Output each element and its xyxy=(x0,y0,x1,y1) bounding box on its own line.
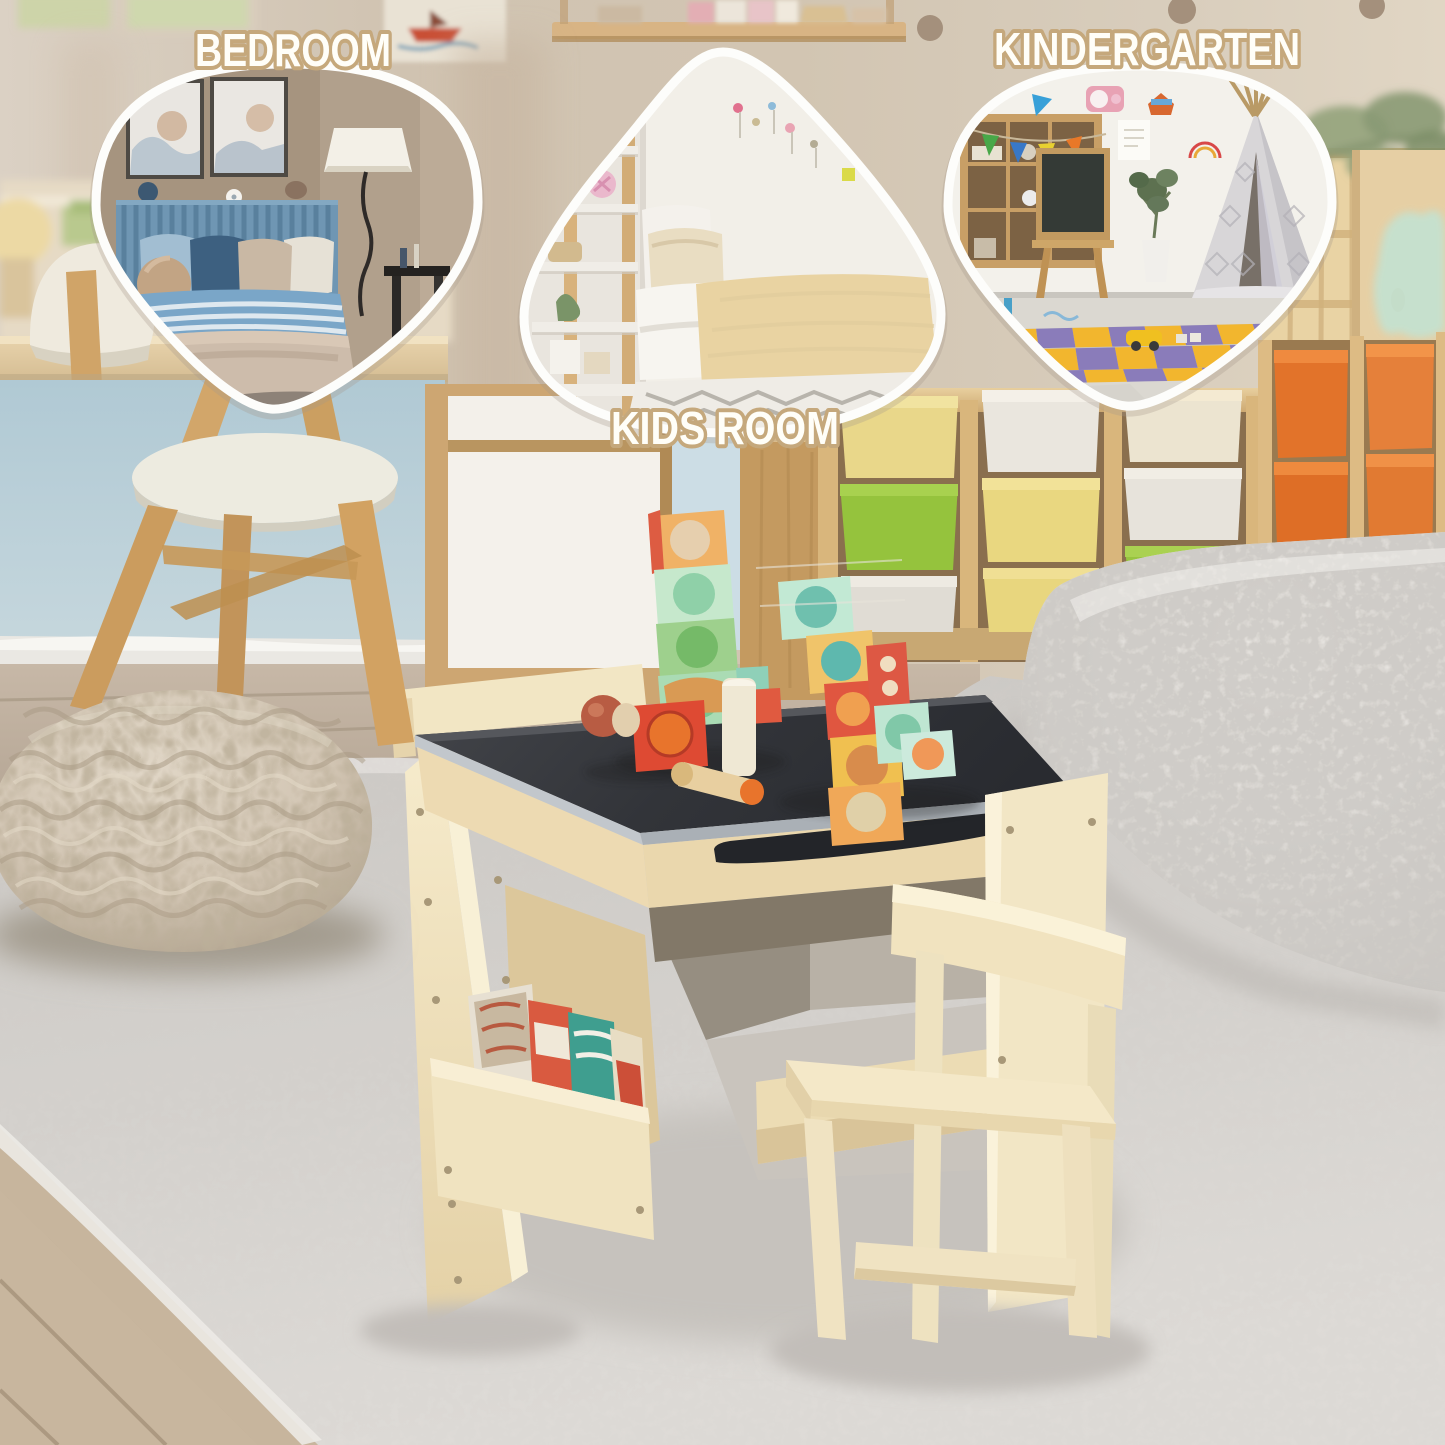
svg-text:BEDROOM: BEDROOM xyxy=(195,24,391,76)
svg-text:KIDS ROOM: KIDS ROOM xyxy=(611,402,839,454)
svg-text:KINDERGARTEN: KINDERGARTEN xyxy=(994,23,1300,75)
